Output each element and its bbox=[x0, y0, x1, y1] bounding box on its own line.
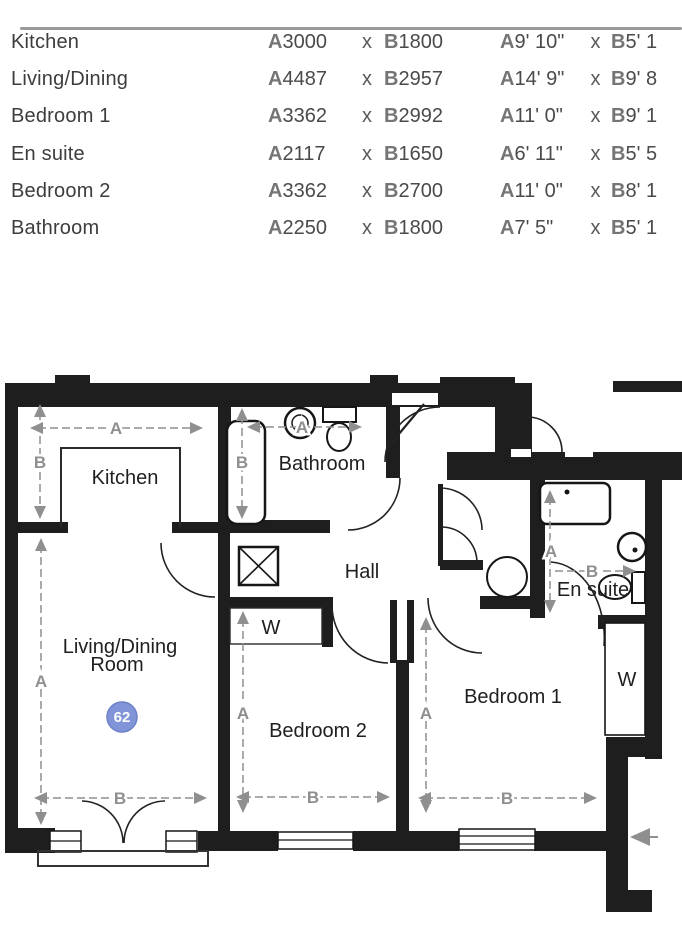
bathroom-toilet-cistern bbox=[323, 407, 356, 422]
french-door-arc-right bbox=[124, 801, 165, 843]
imperial-dimensions: A7' 5"xB5' 1 bbox=[500, 217, 657, 240]
dim-label-a: A bbox=[420, 704, 432, 723]
bedroom1-door-arc bbox=[428, 598, 482, 653]
room-label-hall: Hall bbox=[345, 561, 379, 583]
dimensions-table: Kitchen A3000xB1800 A9' 10"xB5' 1 Living… bbox=[0, 0, 682, 260]
table-top-divider bbox=[20, 27, 682, 30]
imperial-dimensions: A11' 0"xB8' 1 bbox=[500, 180, 657, 203]
metric-dimensions: A3362xB2992 bbox=[268, 105, 443, 128]
table-row: En suite A2117xB1650 A6' 11"xB5' 5 bbox=[0, 143, 682, 169]
metric-dimensions: A3362xB2700 bbox=[268, 180, 443, 203]
imperial-dimensions: A11' 0"xB9' 1 bbox=[500, 105, 657, 128]
room-label-kitchen: Kitchen bbox=[92, 467, 159, 489]
unit-number: 62 bbox=[114, 709, 131, 726]
wardrobe-label: W bbox=[618, 669, 637, 691]
windows bbox=[38, 829, 535, 866]
dim-label-a: A bbox=[237, 704, 249, 723]
metric-dimensions: A2250xB1800 bbox=[268, 217, 443, 240]
room-label-living-line2: Room bbox=[90, 654, 143, 676]
dim-label-b: B bbox=[114, 789, 126, 808]
room-label-bedroom1: Bedroom 1 bbox=[464, 686, 562, 708]
shower-drain bbox=[565, 490, 570, 495]
metric-dimensions: A3000xB1800 bbox=[268, 31, 443, 54]
room-name: En suite bbox=[11, 143, 85, 166]
table-row: Bedroom 2 A3362xB2700 A11' 0"xB8' 1 bbox=[0, 180, 682, 206]
hall-cupboard-door-arc bbox=[441, 527, 477, 563]
ensuite-basin bbox=[618, 533, 646, 561]
dim-label-a: A bbox=[110, 419, 122, 438]
hall-cupboard-door-arc bbox=[440, 488, 482, 530]
room-name: Bathroom bbox=[11, 217, 99, 240]
dim-label-b: B bbox=[34, 453, 46, 472]
living-door-arc bbox=[161, 543, 215, 597]
water-cylinder bbox=[487, 557, 527, 597]
metric-dimensions: A2117xB1650 bbox=[268, 143, 443, 166]
dim-label-a: A bbox=[545, 542, 557, 561]
metric-dimensions: A4487xB2957 bbox=[268, 68, 443, 91]
wardrobe-label: W bbox=[262, 617, 281, 639]
dim-label-b: B bbox=[501, 789, 513, 808]
table-row: Bedroom 1 A3362xB2992 A11' 0"xB9' 1 bbox=[0, 105, 682, 131]
room-name: Bedroom 1 bbox=[11, 105, 111, 128]
bathroom-door-arc bbox=[348, 478, 400, 530]
ensuite-toilet-cistern bbox=[632, 572, 645, 603]
room-name: Kitchen bbox=[11, 31, 79, 54]
balcony-outline bbox=[38, 851, 208, 866]
window bbox=[459, 829, 535, 850]
room-name: Bedroom 2 bbox=[11, 180, 111, 203]
dim-label-b: B bbox=[307, 788, 319, 807]
imperial-dimensions: A14' 9"xB9' 8 bbox=[500, 68, 657, 91]
entry-arrow-icon bbox=[630, 828, 658, 846]
dim-label-a: A bbox=[35, 672, 47, 691]
dim-label-a: A bbox=[296, 418, 308, 437]
table-row: Bathroom A2250xB1800 A7' 5"xB5' 1 bbox=[0, 217, 682, 243]
brochure-page: { "table": { "prefix_a": "A", "prefix_b"… bbox=[0, 0, 682, 932]
floor-plan: A B B A A B A B A B bbox=[0, 375, 682, 932]
imperial-dimensions: A9' 10"xB5' 1 bbox=[500, 31, 657, 54]
room-label-bedroom2: Bedroom 2 bbox=[269, 720, 367, 742]
room-label-bathroom: Bathroom bbox=[279, 453, 366, 475]
room-name: Living/Dining bbox=[11, 68, 128, 91]
table-row: Living/Dining A4487xB2957 A14' 9"xB9' 8 bbox=[0, 68, 682, 94]
front-door-arc bbox=[527, 417, 562, 452]
dim-label-b: B bbox=[236, 453, 248, 472]
ensuite-basin-tap bbox=[633, 548, 638, 553]
room-label-ensuite: En suite bbox=[557, 579, 629, 601]
unit-badge: 62 bbox=[107, 702, 137, 732]
imperial-dimensions: A6' 11"xB5' 5 bbox=[500, 143, 657, 166]
table-row: Kitchen A3000xB1800 A9' 10"xB5' 1 bbox=[0, 31, 682, 57]
bedroom2-door-arc bbox=[332, 605, 388, 663]
